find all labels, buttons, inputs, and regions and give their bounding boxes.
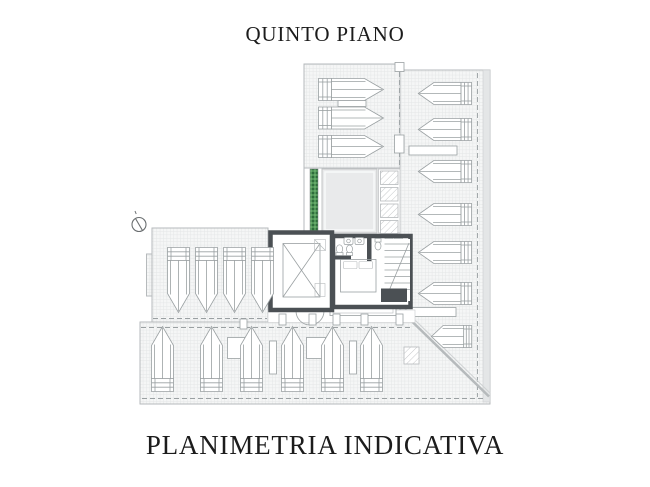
skylight-panel xyxy=(381,204,399,218)
post xyxy=(309,314,316,325)
post xyxy=(279,314,286,325)
side-table xyxy=(409,146,457,155)
skylight-panel xyxy=(381,171,399,185)
floor-plan xyxy=(0,0,650,487)
post xyxy=(240,319,247,329)
side-table xyxy=(338,101,366,107)
north-arrow-icon xyxy=(132,211,146,232)
solarium-platform xyxy=(322,169,377,233)
bidet xyxy=(347,245,353,253)
post xyxy=(396,314,403,325)
plan-caption: PLANIMETRIA INDICATIVA xyxy=(0,432,650,459)
corner-wall xyxy=(381,289,407,303)
toilet xyxy=(375,242,381,250)
roof-hatch-box xyxy=(404,347,419,364)
top-terrace-loungers xyxy=(319,79,384,158)
skylight-panel xyxy=(381,221,399,234)
brochure-page: QUINTO PIANO xyxy=(0,0,650,487)
boundary-marker xyxy=(395,135,405,153)
post xyxy=(333,314,340,325)
skylight-panel xyxy=(381,188,399,202)
toilet xyxy=(336,245,342,253)
side-table xyxy=(350,341,357,374)
core xyxy=(271,233,411,311)
hedge-planter xyxy=(310,169,318,233)
boundary-marker xyxy=(395,63,404,72)
left-terrace-notch xyxy=(147,254,153,296)
right-edge-band xyxy=(483,70,490,402)
post xyxy=(361,314,368,325)
side-table xyxy=(270,341,277,374)
